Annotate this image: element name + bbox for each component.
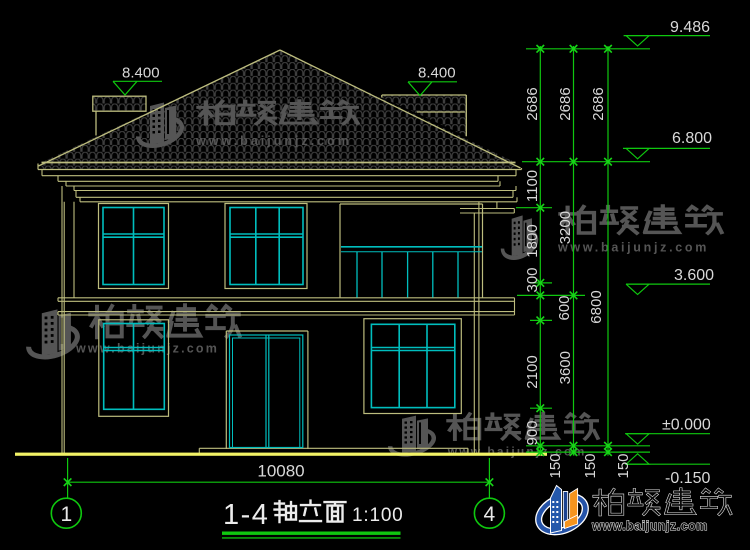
- svg-text:1100: 1100: [524, 170, 541, 202]
- svg-text:1:100: 1:100: [352, 505, 404, 526]
- svg-text:4: 4: [484, 503, 496, 526]
- svg-text:www.baijunjz.com: www.baijunjz.com: [557, 241, 709, 255]
- svg-text:300: 300: [524, 267, 541, 292]
- svg-text:1-4: 1-4: [223, 499, 269, 531]
- svg-text:www.baijunjz.com: www.baijunjz.com: [591, 519, 708, 533]
- svg-text:1: 1: [60, 503, 72, 526]
- svg-text:9.486: 9.486: [670, 19, 710, 36]
- svg-text:8.400: 8.400: [418, 65, 456, 82]
- svg-text:2686: 2686: [524, 87, 541, 120]
- svg-text:2100: 2100: [524, 355, 541, 388]
- svg-text:www.baijunjz.com: www.baijunjz.com: [75, 342, 219, 356]
- svg-text:6800: 6800: [588, 290, 605, 323]
- svg-text:150: 150: [615, 453, 632, 478]
- svg-text:-0.150: -0.150: [665, 470, 710, 487]
- svg-text:www.baijunjz.com: www.baijunjz.com: [195, 134, 352, 148]
- svg-text:900: 900: [524, 420, 541, 445]
- svg-text:3200: 3200: [557, 211, 574, 244]
- svg-text:2686: 2686: [590, 87, 607, 120]
- svg-text:6.800: 6.800: [672, 130, 712, 147]
- svg-text:600: 600: [556, 295, 573, 320]
- svg-text:150: 150: [582, 453, 599, 478]
- svg-text:±0.000: ±0.000: [662, 417, 711, 434]
- svg-text:3.600: 3.600: [674, 267, 714, 284]
- svg-text:3600: 3600: [557, 351, 574, 384]
- svg-text:1800: 1800: [524, 224, 541, 257]
- svg-text:2686: 2686: [557, 87, 574, 120]
- svg-text:150: 150: [547, 453, 564, 478]
- svg-text:8.400: 8.400: [122, 65, 160, 82]
- svg-text:10080: 10080: [257, 462, 304, 481]
